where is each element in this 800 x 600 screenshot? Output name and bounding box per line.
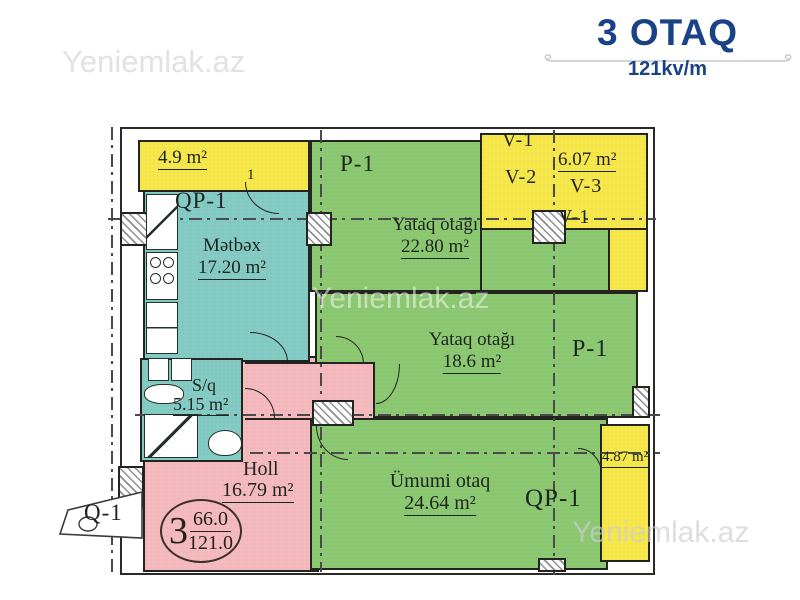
kitchen-name-label: Mətbəx — [203, 236, 261, 256]
watermark-top-left: Yeniemlak.az — [62, 44, 245, 80]
vestibule-v3-label: V-3 — [570, 176, 602, 197]
column-kitchen-right — [306, 212, 332, 246]
kitchen-cabinet-icon — [146, 302, 178, 354]
stamp-living-area: 66.0 — [190, 508, 231, 532]
living-area-label: 24.64 m² — [404, 493, 476, 516]
living-tag-label: QP-1 — [525, 486, 582, 512]
vestibule-right-strip-region — [608, 228, 648, 292]
stamp-area-fraction: 66.0 121.0 — [188, 508, 233, 554]
bedroom-mid-area-label: 18.6 m² — [443, 352, 501, 374]
living-name-label: Ümumi otaq — [390, 471, 491, 492]
floor-plan-page: Yeniemlak.az 3 OTAQ 121kv/m — [0, 0, 800, 600]
bedroom-mid-tag-label: P-1 — [572, 337, 608, 362]
dryer-icon — [171, 358, 192, 381]
axis-horizontal-lower — [250, 452, 660, 454]
qp1-top-tag-label: QP-1 — [175, 189, 228, 213]
vestibule-v2-label: V-2 — [505, 167, 537, 188]
axis-vertical-left — [320, 130, 322, 572]
bedroom-top-tag-label: P-1 — [340, 152, 375, 176]
washer-icon — [148, 358, 169, 381]
vestibule-v1-top-label: V-1 — [502, 130, 534, 151]
apartment-stamp: 3 66.0 121.0 — [160, 499, 242, 563]
shower-icon — [144, 414, 198, 458]
column-right-wall — [632, 386, 650, 418]
column-bottom-wall — [538, 558, 566, 572]
kitchen-area-label: 17.20 m² — [198, 258, 266, 280]
bathroom-name-label: S/q — [192, 376, 216, 395]
hall-name-label: Holl — [243, 459, 279, 480]
listing-title: 3 OTAQ — [535, 12, 800, 54]
bathroom-area-label: 5.15 m² — [173, 395, 228, 416]
listing-area-subtitle: 121kv/m — [535, 58, 800, 81]
column-hall-center — [312, 400, 354, 426]
hall-area-label: 16.79 m² — [222, 480, 294, 503]
column-left-upper — [120, 212, 148, 246]
stamp-total-area: 121.0 — [188, 532, 233, 554]
vestibule-area-label: 6.07 m² — [558, 150, 616, 172]
bedroom-mid-name-label: Yataq otağı — [429, 330, 515, 350]
watermark-bottom-right: Yeniemlak.az — [572, 516, 749, 550]
stove-icon — [146, 252, 178, 300]
vestibule-v1-box-label: V-1 — [558, 207, 590, 228]
bedroom-top-area-label: 22.80 m² — [401, 237, 469, 259]
watermark-center: Yeniemlak.az — [312, 282, 489, 316]
entrance-tag-label: Q-1 — [84, 501, 123, 525]
toilet-icon — [208, 430, 242, 456]
balcony-right-area-label: 4.87 m² — [602, 450, 648, 468]
door-number-label: 1 — [247, 168, 255, 184]
bedroom-top-name-label: Yataq otağı — [392, 215, 478, 235]
stamp-room-count: 3 — [169, 512, 188, 550]
kitchen-counter-icon — [146, 194, 178, 250]
balcony-top-left-area-label: 4.9 m² — [158, 148, 207, 170]
